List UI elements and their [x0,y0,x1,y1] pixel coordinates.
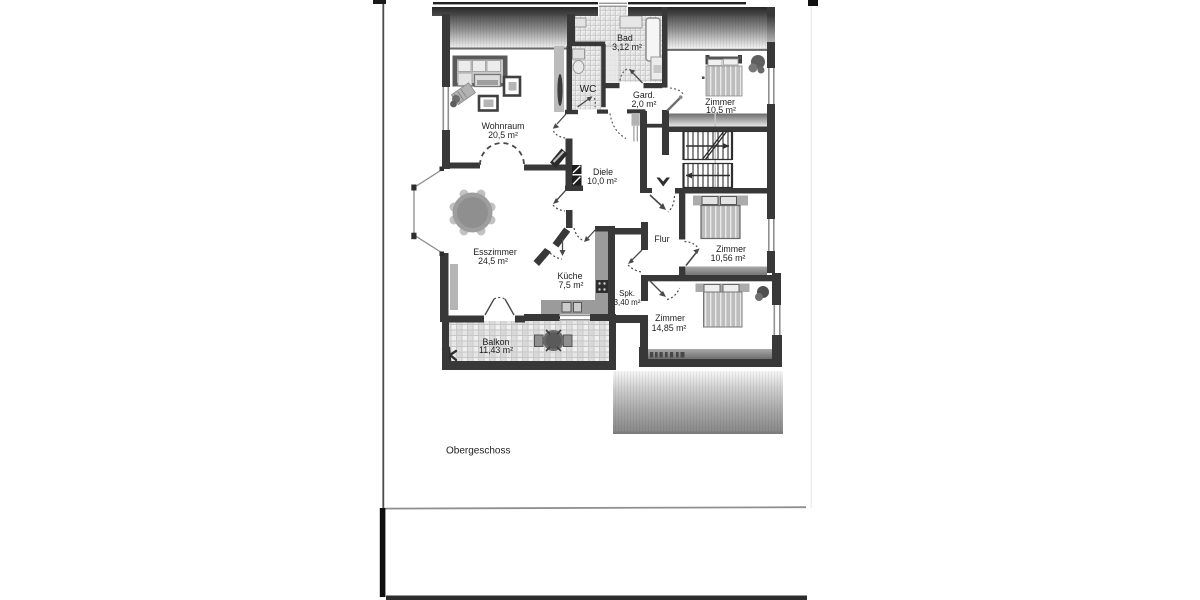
svg-text:Spk.: Spk. [619,289,635,298]
svg-text:10,5 m²: 10,5 m² [706,105,736,115]
svg-text:3,40 m²: 3,40 m² [614,298,641,307]
svg-text:10,56 m²: 10,56 m² [711,253,746,263]
svg-text:24,5 m²: 24,5 m² [478,256,508,266]
svg-text:Zimmer: Zimmer [655,313,685,323]
svg-text:14,85 m²: 14,85 m² [652,323,687,333]
svg-text:WC: WC [580,84,597,95]
svg-text:Obergeschoss: Obergeschoss [446,446,510,457]
svg-text:20,5 m²: 20,5 m² [488,130,518,140]
svg-text:Flur: Flur [654,234,669,244]
svg-text:2,0 m²: 2,0 m² [632,99,657,109]
svg-text:11,43 m²: 11,43 m² [479,345,513,355]
svg-text:10,0 m²: 10,0 m² [587,176,617,186]
svg-text:3,12 m²: 3,12 m² [612,42,642,52]
svg-text:7,5 m²: 7,5 m² [559,280,584,290]
